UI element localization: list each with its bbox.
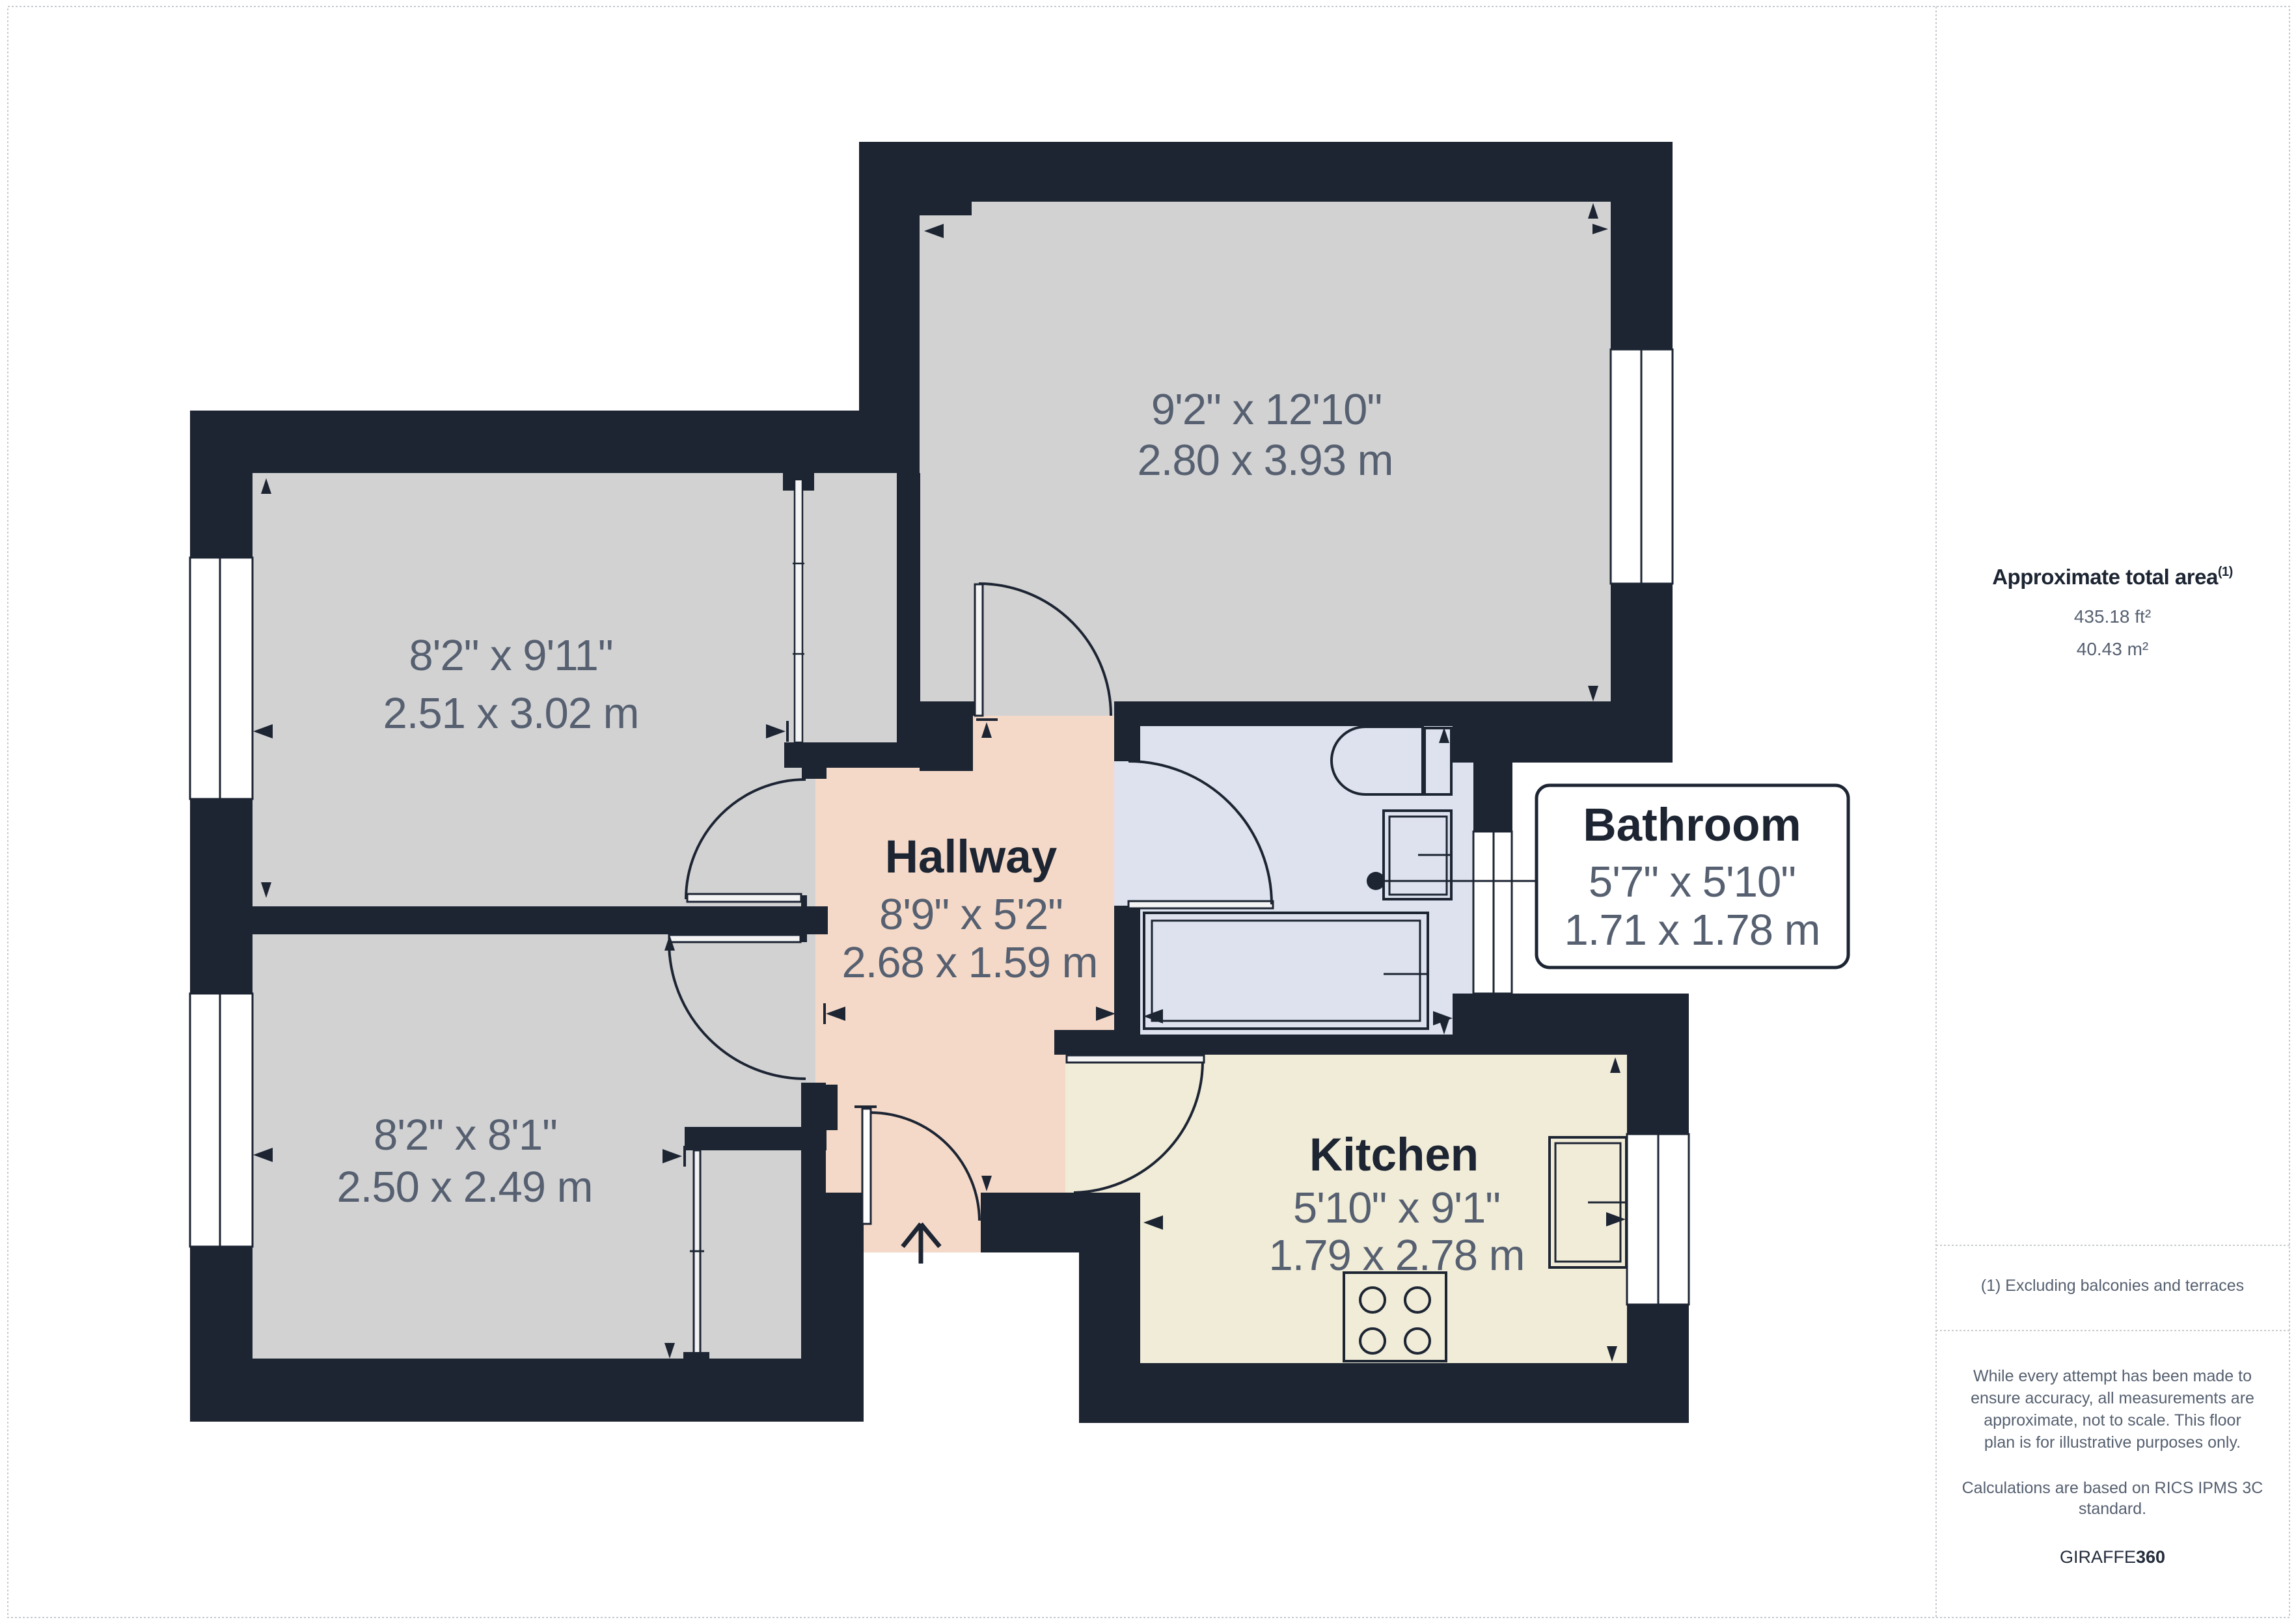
svg-text:5'7" x 5'10": 5'7" x 5'10" bbox=[1589, 858, 1796, 906]
svg-text:ensure accuracy, all measureme: ensure accuracy, all measurements are bbox=[1971, 1389, 2254, 1407]
svg-text:2.50 x 2.49 m: 2.50 x 2.49 m bbox=[337, 1163, 593, 1211]
svg-text:8'9" x 5'2": 8'9" x 5'2" bbox=[879, 890, 1063, 939]
svg-text:9'2" x 12'10": 9'2" x 12'10" bbox=[1151, 385, 1382, 434]
svg-text:2.80 x 3.93 m: 2.80 x 3.93 m bbox=[1138, 436, 1393, 485]
svg-text:plan is for illustrative purpo: plan is for illustrative purposes only. bbox=[1984, 1433, 2241, 1452]
svg-text:Hallway: Hallway bbox=[885, 832, 1058, 883]
svg-text:(1) Excluding balconies and te: (1) Excluding balconies and terraces bbox=[1981, 1277, 2244, 1295]
svg-text:Bathroom: Bathroom bbox=[1583, 800, 1801, 851]
svg-text:8'2" x 9'11": 8'2" x 9'11" bbox=[409, 631, 612, 680]
svg-text:Calculations are based on RICS: Calculations are based on RICS IPMS 3C bbox=[1962, 1479, 2263, 1497]
svg-text:435.18 ft²: 435.18 ft² bbox=[2074, 606, 2151, 627]
svg-text:5'10" x 9'1": 5'10" x 9'1" bbox=[1293, 1184, 1500, 1232]
svg-text:Kitchen: Kitchen bbox=[1309, 1130, 1479, 1181]
svg-text:2.68 x 1.59 m: 2.68 x 1.59 m bbox=[842, 938, 1098, 987]
svg-text:1.79 x 2.78 m: 1.79 x 2.78 m bbox=[1269, 1231, 1525, 1280]
svg-text:While every attempt has been m: While every attempt has been made to bbox=[1973, 1367, 2252, 1385]
svg-text:approximate, not to scale. Thi: approximate, not to scale. This floor bbox=[1984, 1411, 2241, 1429]
svg-text:standard.: standard. bbox=[2079, 1500, 2146, 1518]
svg-text:2.51 x 3.02 m: 2.51 x 3.02 m bbox=[383, 689, 639, 738]
svg-text:1.71 x 1.78 m: 1.71 x 1.78 m bbox=[1565, 906, 1820, 954]
svg-text:8'2" x 8'1": 8'2" x 8'1" bbox=[374, 1111, 557, 1159]
svg-text:GIRAFFE360: GIRAFFE360 bbox=[2060, 1547, 2165, 1567]
svg-text:Approximate total area(1): Approximate total area(1) bbox=[1992, 565, 2233, 589]
svg-text:40.43 m²: 40.43 m² bbox=[2077, 639, 2149, 659]
